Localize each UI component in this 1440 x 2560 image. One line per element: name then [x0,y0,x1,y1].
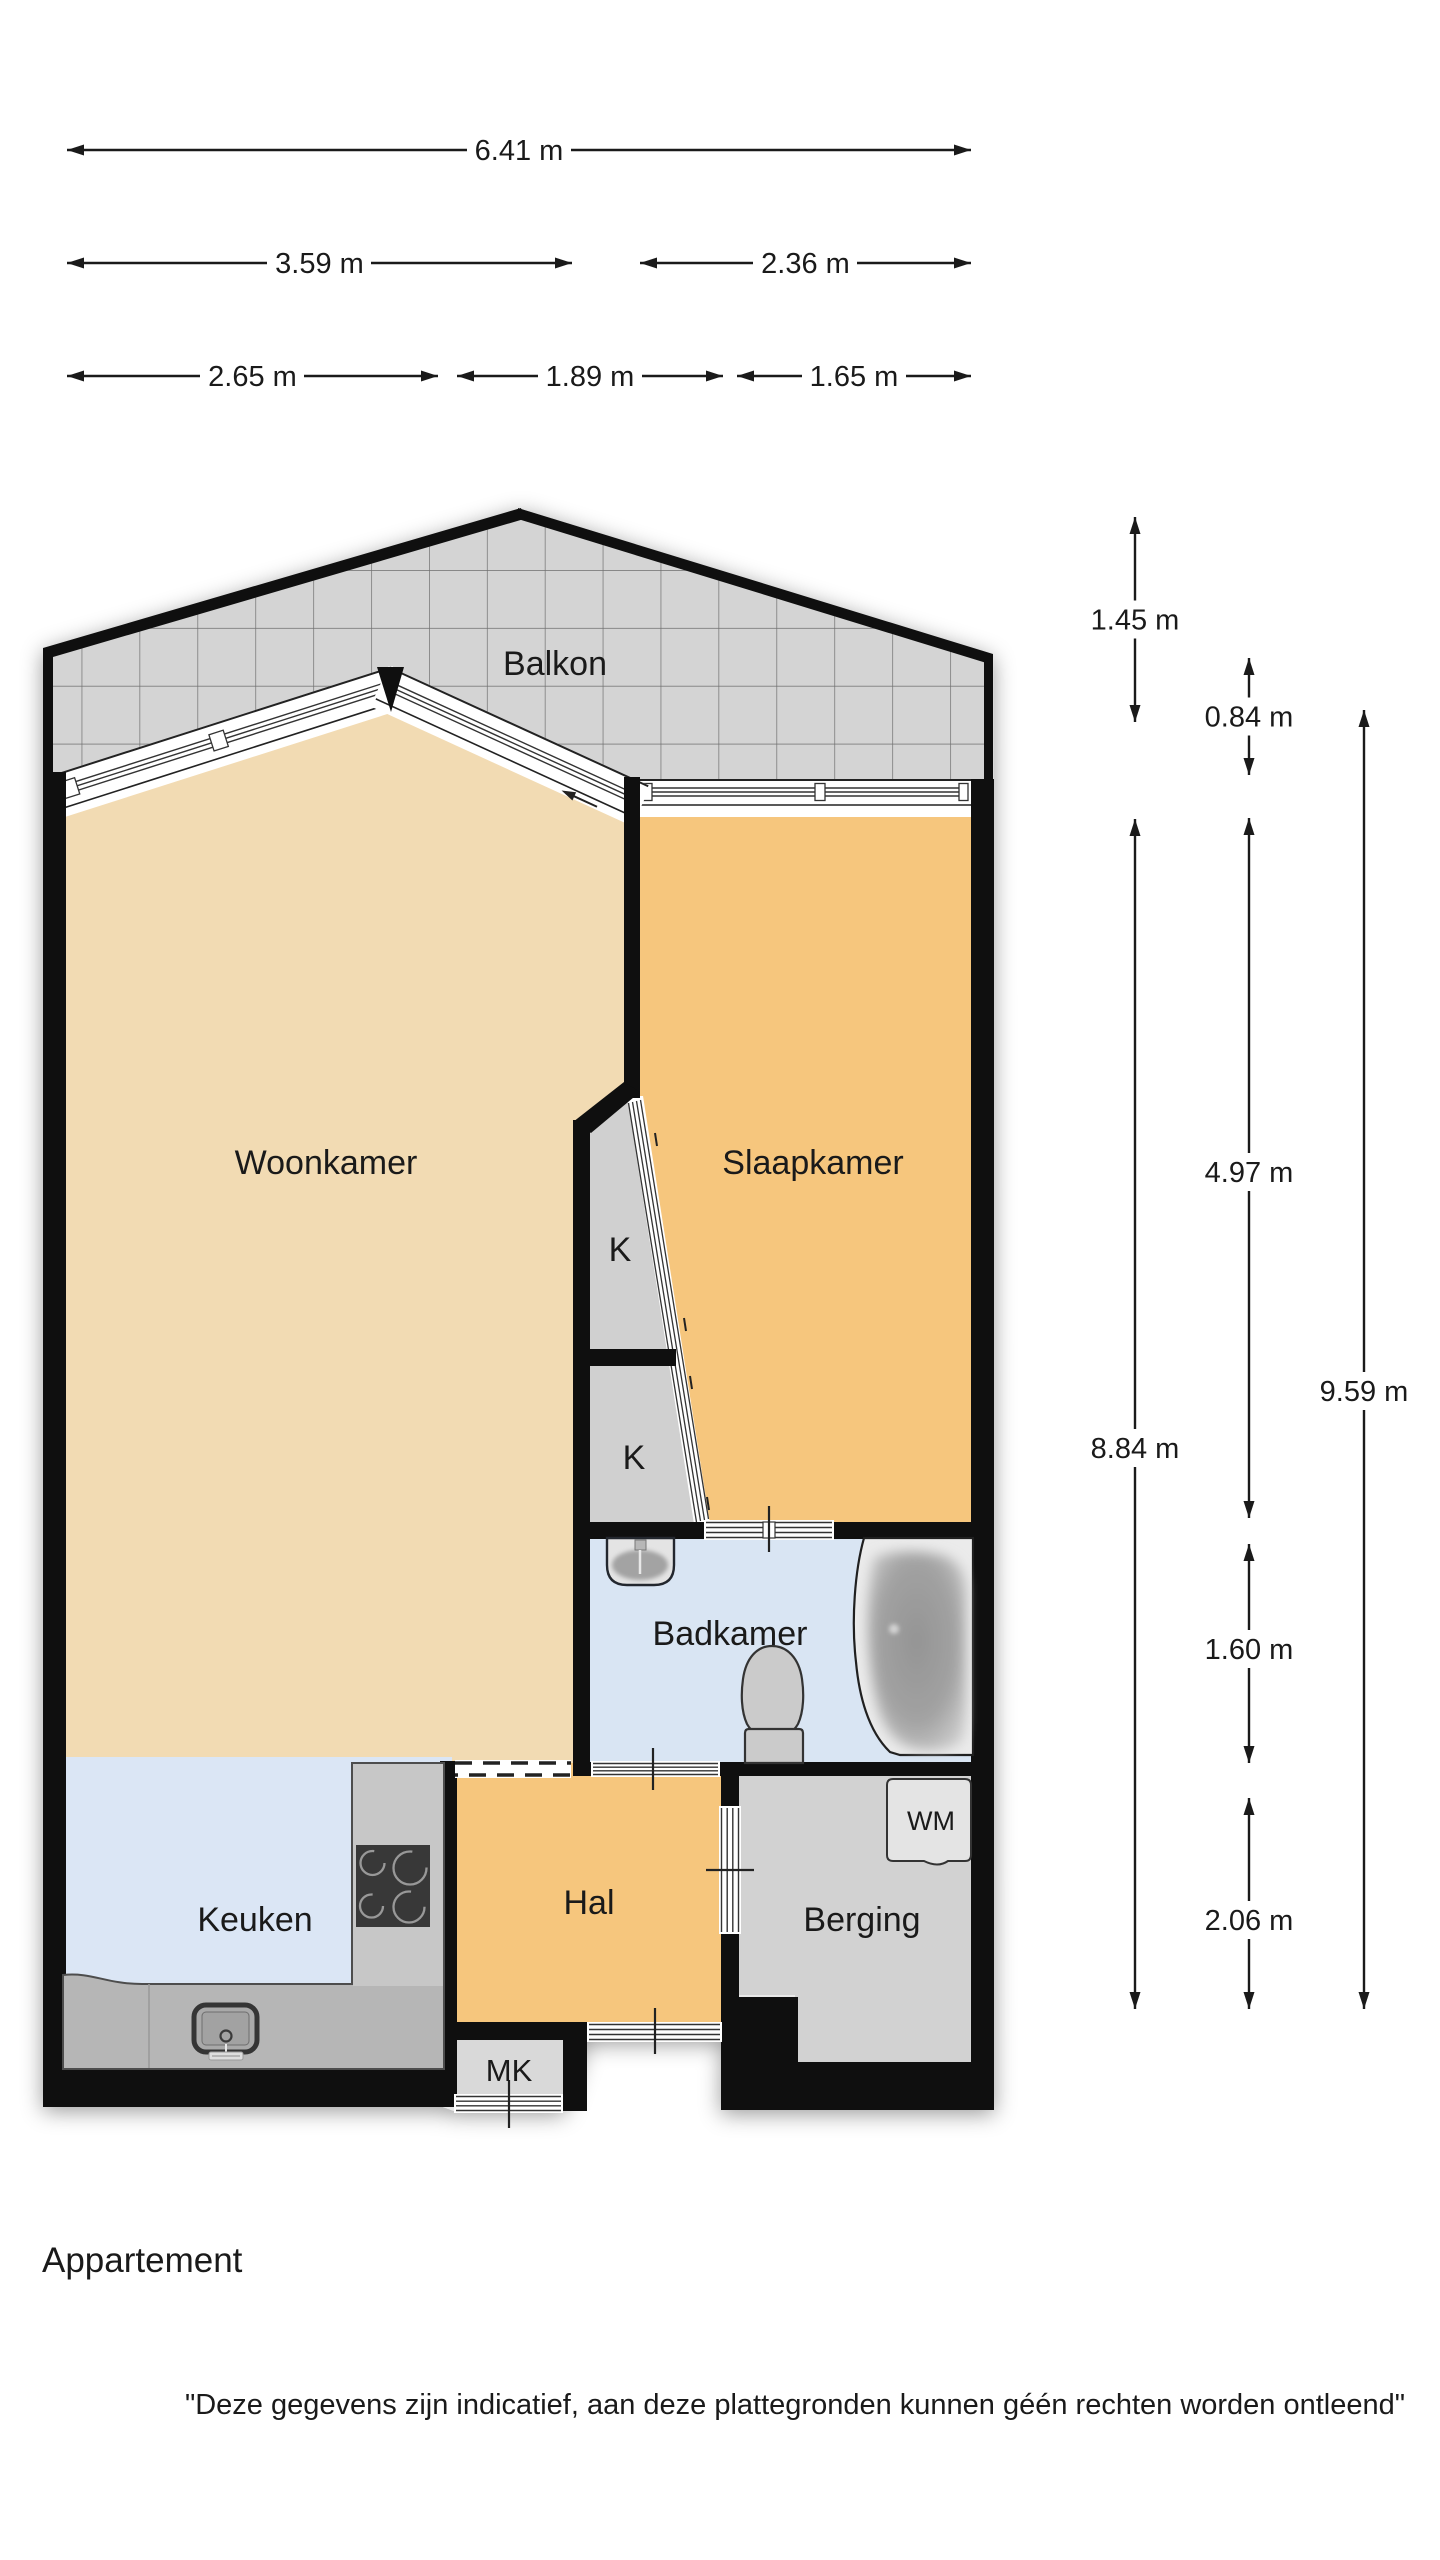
svg-text:2.06 m: 2.06 m [1205,1905,1294,1937]
svg-text:"Deze gegevens zijn indicatief: "Deze gegevens zijn indicatief, aan deze… [185,2389,1405,2421]
svg-text:MK: MK [486,2053,533,2088]
svg-text:0.84 m: 0.84 m [1205,702,1294,734]
svg-text:1.60 m: 1.60 m [1205,1634,1294,1666]
svg-text:1.45 m: 1.45 m [1091,605,1180,637]
svg-text:Berging: Berging [803,1901,920,1939]
svg-text:Hal: Hal [563,1884,614,1922]
svg-text:Keuken: Keuken [197,1901,312,1939]
svg-text:3.59 m: 3.59 m [275,248,364,280]
svg-text:2.36 m: 2.36 m [761,248,850,280]
svg-text:K: K [623,1439,646,1477]
svg-text:1.65 m: 1.65 m [810,361,899,393]
svg-text:Balkon: Balkon [503,645,607,683]
svg-text:6.41 m: 6.41 m [475,135,564,167]
svg-text:Woonkamer: Woonkamer [235,1144,418,1182]
svg-text:Appartement: Appartement [42,2241,243,2280]
svg-text:Slaapkamer: Slaapkamer [722,1144,903,1182]
svg-text:1.89 m: 1.89 m [546,361,635,393]
svg-text:WM: WM [907,1806,955,1836]
svg-text:K: K [609,1231,632,1269]
svg-text:8.84 m: 8.84 m [1091,1433,1180,1465]
svg-text:2.65 m: 2.65 m [208,361,297,393]
svg-text:9.59 m: 9.59 m [1320,1376,1409,1408]
svg-text:Badkamer: Badkamer [653,1615,808,1653]
svg-text:4.97 m: 4.97 m [1205,1157,1294,1189]
